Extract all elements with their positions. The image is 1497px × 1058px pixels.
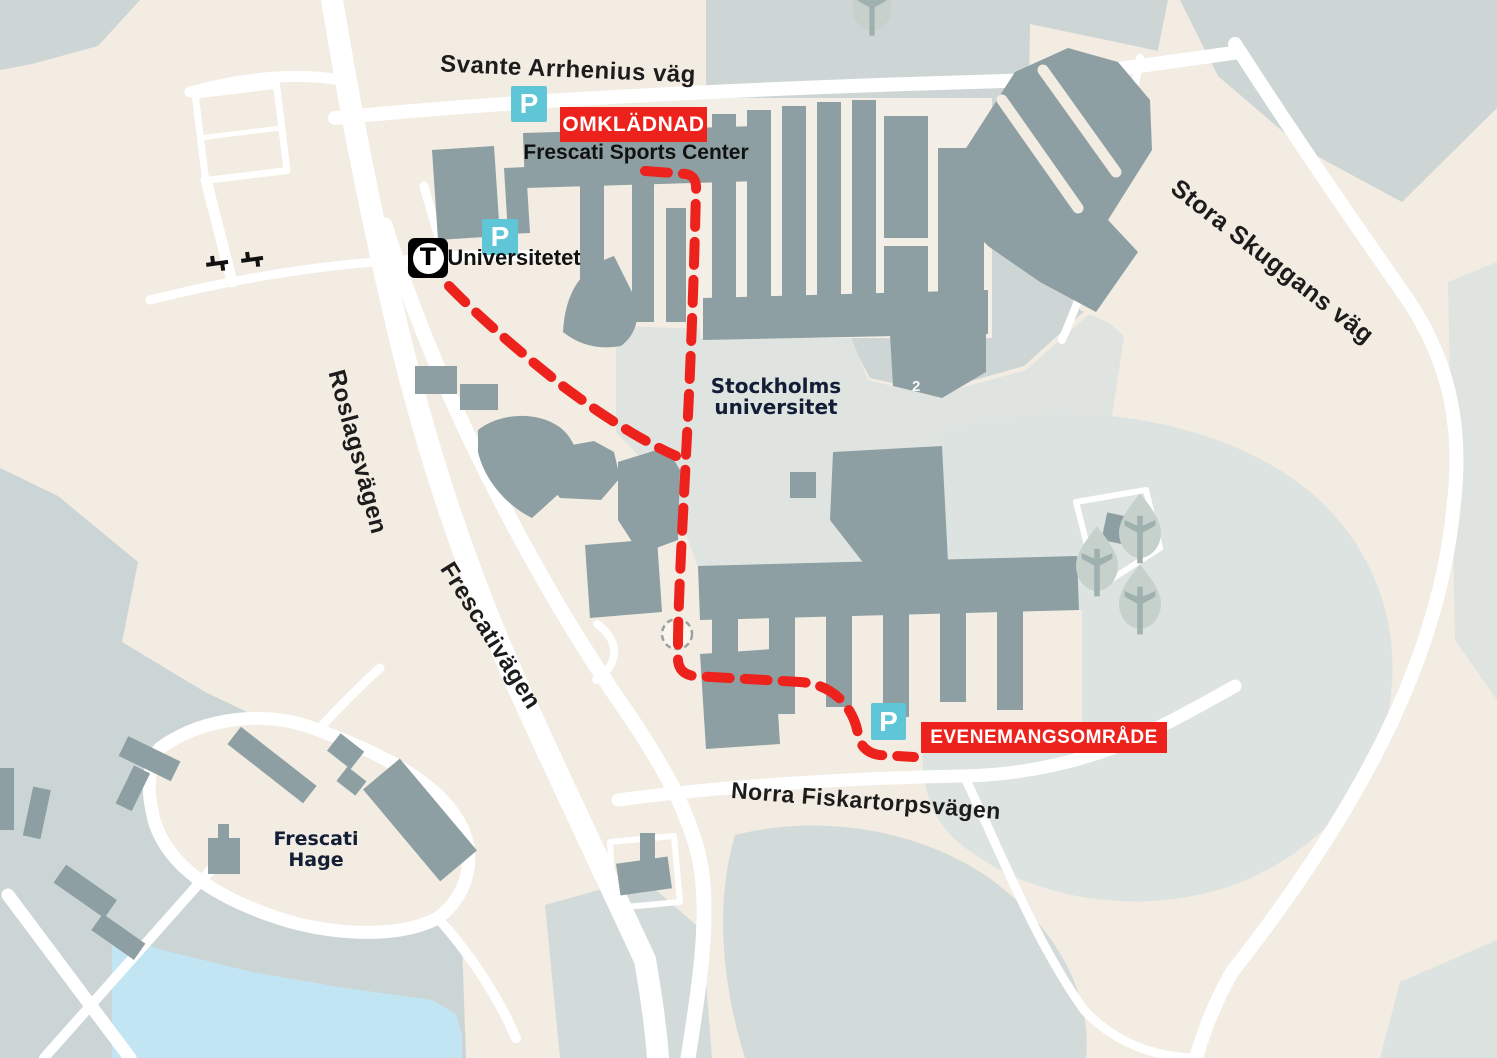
frescati-hage-line1: Frescati xyxy=(273,829,358,850)
parking-icon-sports: P xyxy=(511,86,547,122)
road-label-norra-fiskartorpsvagen: Norra Fiskartorpsvägen xyxy=(730,777,1002,825)
parking-icon-event: P xyxy=(871,703,906,740)
label-overlay: Svante Arrhenius väg Roslagsvägen Fresca… xyxy=(0,0,1497,1058)
road-label-stora-skuggans-vag: Stora Skuggans väg xyxy=(1165,174,1379,350)
sports-center-label: Frescati Sports Center xyxy=(523,141,748,165)
road-label-roslagsvagen: Roslagsvägen xyxy=(322,367,393,537)
metro-icon-letter: T xyxy=(420,245,436,269)
changing-rooms-banner: OMKLÄDNAD xyxy=(560,107,707,142)
university-label-line2: universitet xyxy=(711,397,841,418)
event-area-banner: EVENEMANGSOMRÅDE xyxy=(921,722,1167,753)
road-label-svante-arrhenius-vag: Svante Arrhenius väg xyxy=(440,50,697,89)
building-number-label: 2 xyxy=(912,378,920,395)
metro-icon: T xyxy=(408,238,448,278)
frescati-hage-label: Frescati Hage xyxy=(273,829,358,871)
university-label: Stockholms universitet xyxy=(711,376,841,418)
metro-icon-ring: T xyxy=(413,243,444,274)
metro-station-label: Universitetet xyxy=(447,245,580,271)
road-label-frescativagen: Frescativägen xyxy=(434,557,547,714)
campus-map: Svante Arrhenius väg Roslagsvägen Fresca… xyxy=(0,0,1497,1058)
frescati-hage-line2: Hage xyxy=(273,850,358,871)
university-label-line1: Stockholms xyxy=(711,376,841,397)
